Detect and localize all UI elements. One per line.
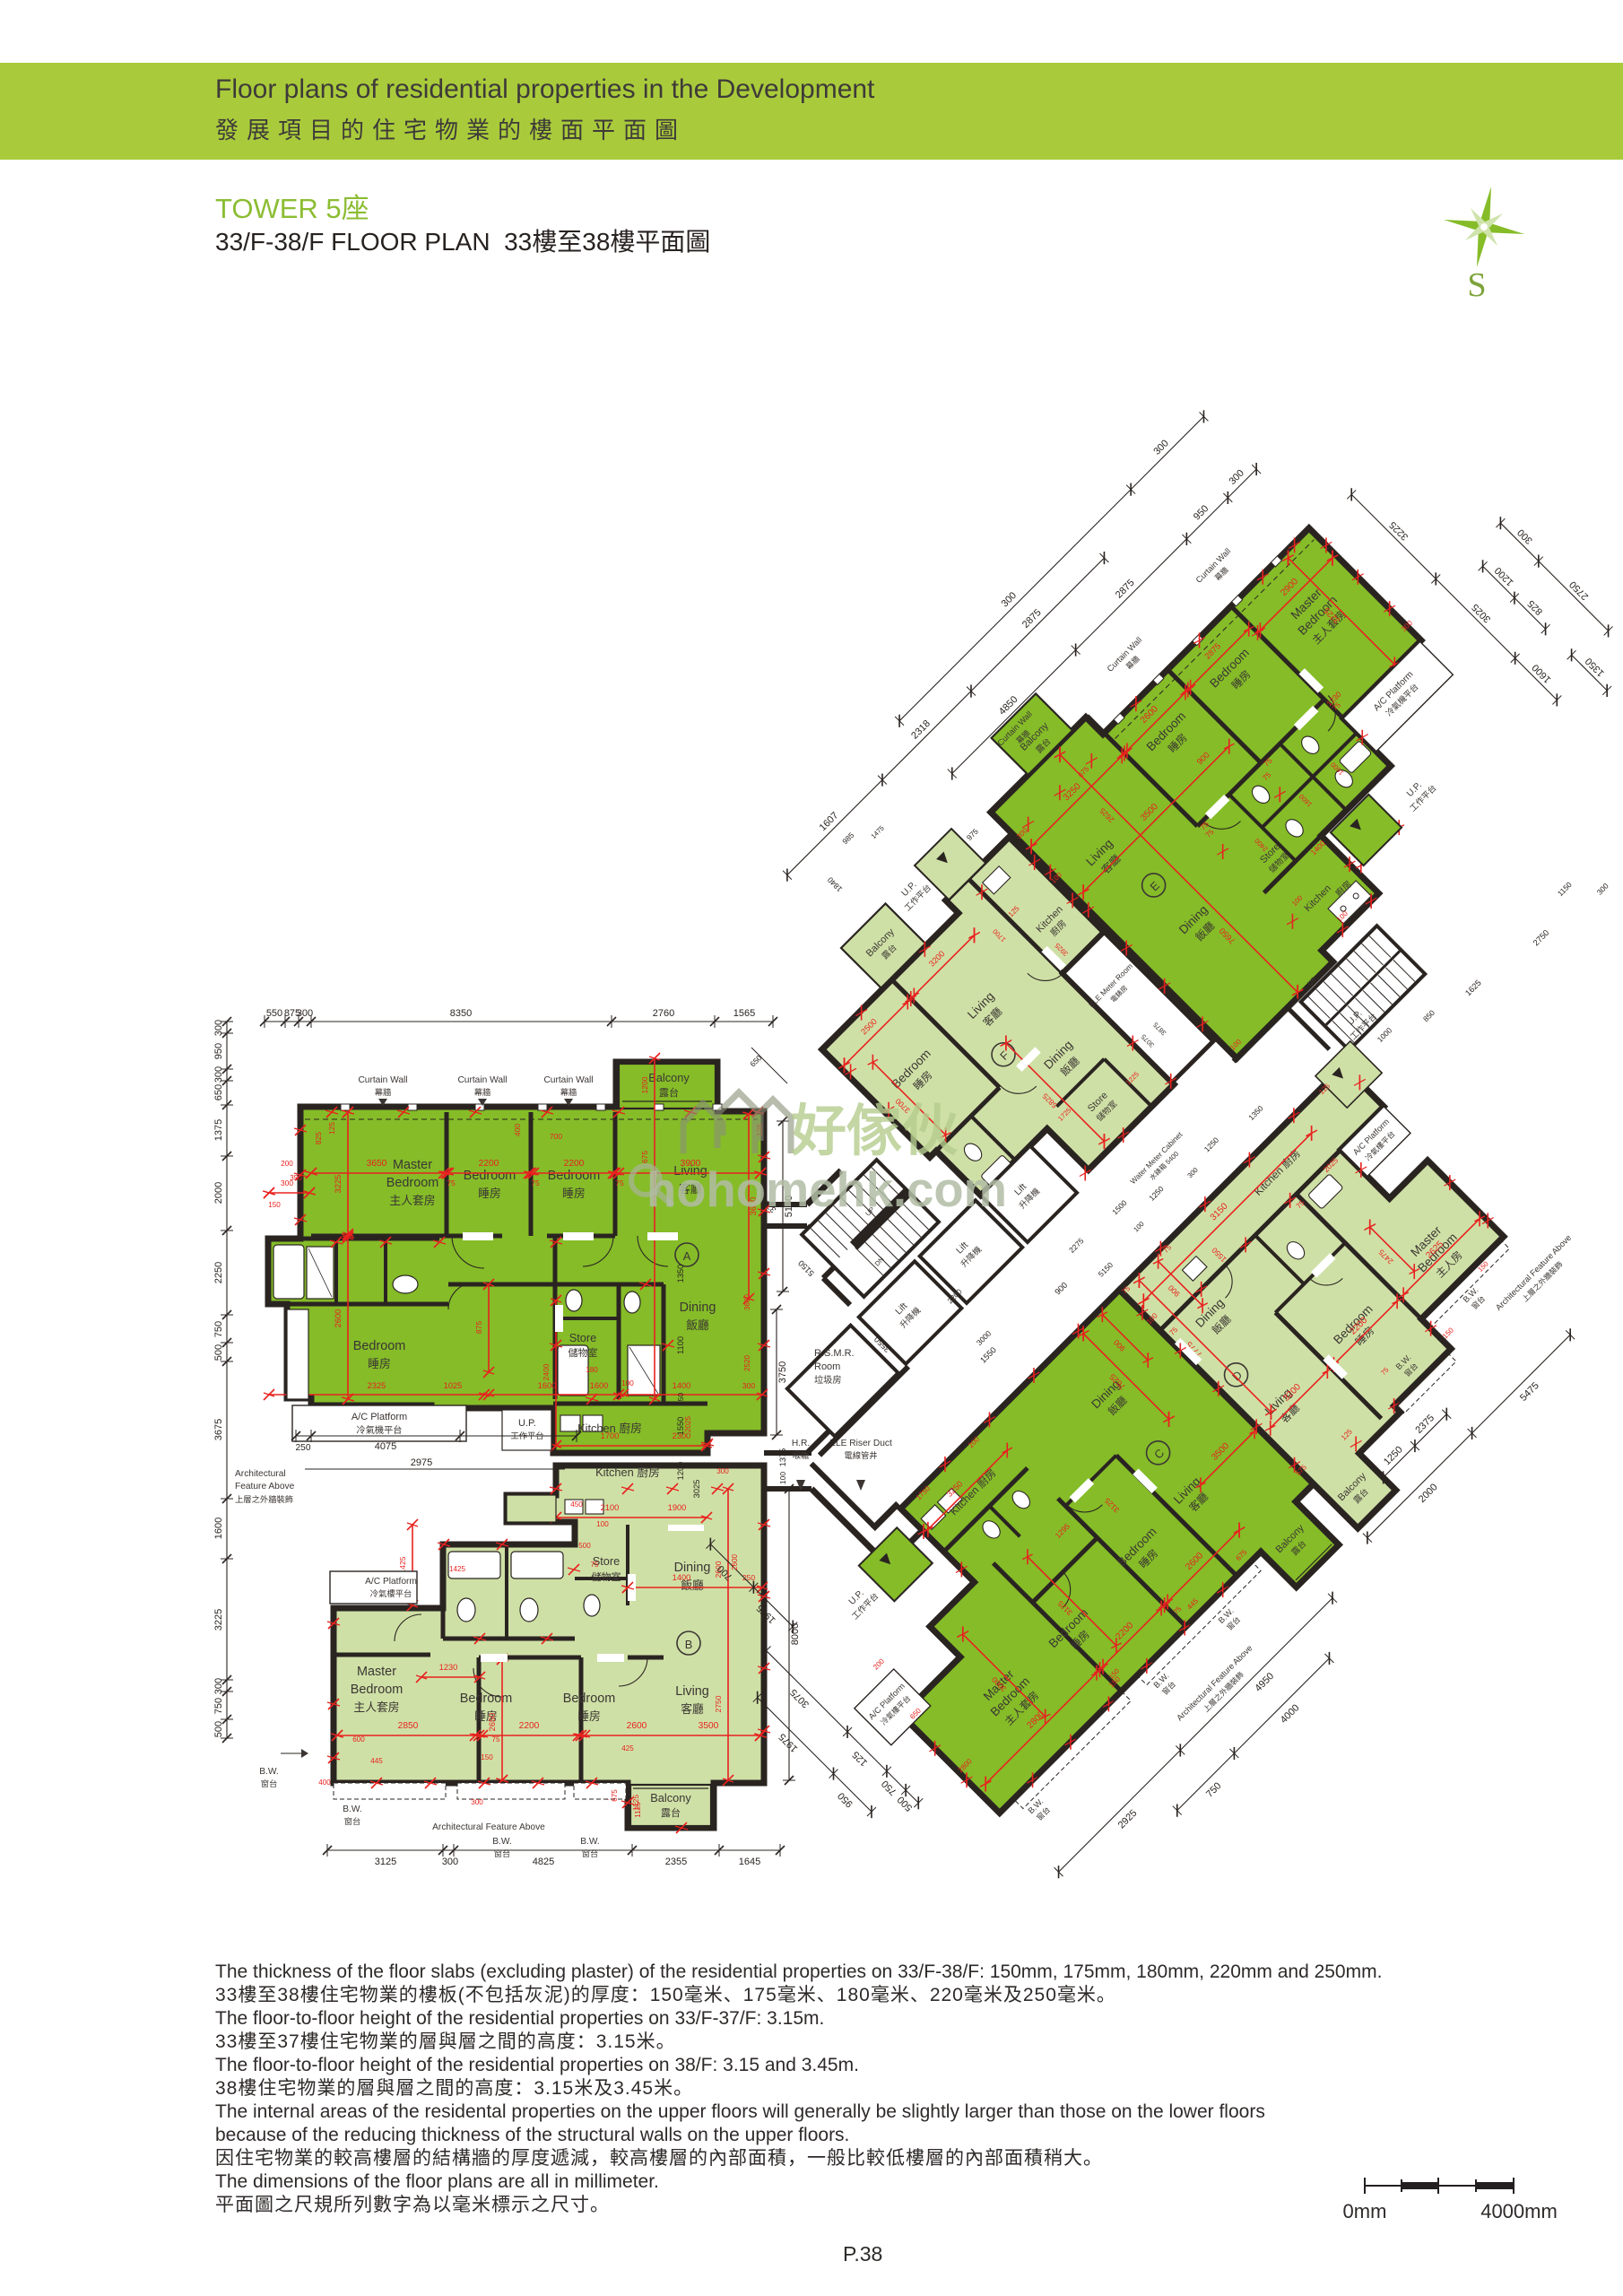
svg-text:75: 75 [531,1178,540,1187]
svg-text:3125: 3125 [375,1857,396,1867]
svg-text:1200: 1200 [676,1462,685,1481]
svg-text:100: 100 [621,1379,634,1387]
svg-text:8350: 8350 [450,1008,472,1019]
svg-text:1150: 1150 [1556,880,1574,898]
svg-text:主人套房: 主人套房 [353,1700,399,1714]
svg-text:Feature Above: Feature Above [235,1482,295,1492]
svg-text:700: 700 [550,1132,562,1141]
svg-text:Master: Master [357,1665,396,1679]
svg-text:4075: 4075 [375,1441,396,1452]
svg-text:300: 300 [1151,438,1170,457]
svg-text:400: 400 [318,1779,331,1787]
svg-text:4825: 4825 [533,1857,554,1867]
svg-text:750: 750 [213,1321,224,1337]
svg-text:125: 125 [327,1122,336,1135]
svg-text:250: 250 [296,1443,311,1453]
svg-text:950: 950 [213,1043,224,1059]
svg-text:300: 300 [442,1857,458,1867]
svg-text:1600: 1600 [213,1518,224,1539]
svg-text:300: 300 [1515,526,1534,545]
svg-text:2318: 2318 [909,718,933,742]
svg-text:300: 300 [716,1467,729,1475]
svg-text:300: 300 [1228,468,1246,487]
svg-text:冷氣機平台: 冷氣機平台 [357,1424,403,1436]
svg-text:150: 150 [268,1201,281,1209]
svg-text:2600: 2600 [731,1554,739,1571]
svg-text:U.P.: U.P. [518,1418,536,1429]
svg-text:1125: 1125 [634,1802,642,1818]
svg-text:儲物室: 儲物室 [592,1570,621,1583]
svg-text:R.S.M.R.: R.S.M.R. [814,1348,855,1359]
svg-text:Balcony: Balcony [650,1791,691,1805]
svg-text:客廳: 客廳 [681,1702,704,1716]
svg-text:2760: 2760 [653,1008,674,1019]
svg-text:3600: 3600 [743,1294,751,1311]
svg-text:2600: 2600 [627,1721,647,1731]
svg-text:窗台: 窗台 [344,1816,361,1826]
svg-text:4000mm: 4000mm [1480,2200,1558,2222]
svg-text:幕牆: 幕牆 [474,1087,491,1097]
svg-text:5150: 5150 [1097,1260,1115,1279]
svg-text:1100: 1100 [676,1336,685,1354]
svg-text:Bedroom: Bedroom [460,1692,512,1706]
svg-text:1625: 1625 [1463,978,1483,998]
svg-text:3025: 3025 [692,1480,701,1499]
svg-text:1250: 1250 [1147,1184,1166,1203]
svg-text:睡房: 睡房 [562,1187,586,1200]
svg-text:B: B [685,1638,693,1651]
svg-text:750: 750 [213,1698,224,1714]
svg-text:75: 75 [590,1561,599,1569]
svg-text:2400: 2400 [542,1363,551,1380]
svg-text:Curtain Wall: Curtain Wall [543,1075,593,1085]
svg-text:2200: 2200 [519,1721,540,1731]
svg-text:300: 300 [213,1020,224,1036]
svg-text:2275: 2275 [1067,1236,1086,1255]
svg-text:650: 650 [213,1084,224,1100]
svg-text:1000: 1000 [1376,1025,1394,1044]
svg-text:1475: 1475 [870,824,886,840]
svg-text:Store: Store [569,1331,597,1344]
svg-text:3025: 3025 [1470,602,1493,625]
svg-text:上層之外牆裝飾: 上層之外牆裝飾 [235,1494,293,1504]
svg-text:300: 300 [1595,881,1610,896]
svg-text:650: 650 [748,1053,763,1068]
svg-text:1645: 1645 [739,1857,760,1867]
svg-text:500: 500 [213,1344,224,1361]
svg-text:1200: 1200 [1493,565,1516,588]
svg-text:975: 975 [965,827,980,842]
svg-text:950: 950 [1192,503,1211,522]
svg-text:150: 150 [481,1753,493,1761]
svg-text:窗台: 窗台 [261,1779,278,1788]
svg-text:200: 200 [281,1160,293,1168]
svg-text:2375: 2375 [1413,1413,1436,1436]
svg-text:Kitchen 廚房: Kitchen 廚房 [595,1465,660,1479]
svg-text:600: 600 [352,1735,365,1744]
svg-text:3650: 3650 [367,1159,387,1169]
svg-text:1350: 1350 [1584,656,1607,679]
svg-text:75: 75 [491,1735,500,1744]
svg-text:2355: 2355 [665,1857,687,1867]
svg-text:1565: 1565 [733,1008,755,1019]
svg-text:2750: 2750 [1567,578,1591,602]
svg-text:1975: 1975 [777,1731,800,1754]
svg-text:1350: 1350 [1246,1103,1265,1122]
svg-text:1600: 1600 [538,1381,557,1390]
svg-text:Curtain Wall: Curtain Wall [1194,546,1233,585]
svg-text:hohomehk.com: hohomehk.com [647,1162,1007,1217]
svg-text:B.W.: B.W. [343,1805,362,1814]
svg-text:900: 900 [1053,1281,1069,1297]
svg-text:1375: 1375 [213,1119,224,1141]
svg-text:1550: 1550 [978,1345,998,1365]
svg-text:3075: 3075 [788,1687,811,1710]
svg-text:主人套房: 主人套房 [389,1194,435,1207]
svg-text:2200: 2200 [564,1159,585,1169]
svg-text:1425: 1425 [449,1565,466,1573]
svg-text:75: 75 [615,1178,624,1187]
svg-text:垃圾房: 垃圾房 [814,1374,842,1386]
svg-text:Curtain Wall: Curtain Wall [457,1075,507,1085]
svg-text:2025: 2025 [684,1416,692,1433]
svg-text:3225: 3225 [1387,519,1410,543]
svg-text:幕牆: 幕牆 [375,1087,392,1097]
svg-text:300: 300 [213,1066,224,1083]
svg-text:350: 350 [676,1393,685,1405]
svg-text:1250: 1250 [1382,1444,1405,1467]
svg-text:電線管井: 電線管井 [844,1450,877,1460]
svg-text:2750: 2750 [1532,928,1551,948]
svg-text:2750: 2750 [714,1695,723,1712]
svg-text:B.W.: B.W. [259,1767,279,1777]
svg-text:H.R.: H.R. [792,1439,810,1448]
svg-text:1400: 1400 [673,1573,691,1582]
svg-text:B.W.: B.W. [492,1837,512,1847]
svg-text:300: 300 [1185,1166,1199,1179]
svg-text:985: 985 [840,831,855,846]
svg-text:1500: 1500 [1110,1198,1129,1217]
svg-text:3750: 3750 [777,1361,788,1383]
svg-text:儲物室: 儲物室 [568,1346,598,1359]
svg-text:3500: 3500 [699,1721,719,1731]
svg-text:825: 825 [1526,598,1545,617]
svg-text:1200: 1200 [640,1076,649,1093]
svg-text:1230: 1230 [439,1663,458,1672]
svg-text:1350: 1350 [676,1265,685,1283]
svg-text:445: 445 [370,1757,383,1765]
svg-text:2600: 2600 [334,1309,343,1328]
svg-text:2975: 2975 [411,1457,432,1468]
svg-text:露台: 露台 [661,1806,681,1819]
svg-text:2850: 2850 [398,1721,419,1731]
svg-text:2200: 2200 [479,1159,499,1169]
svg-text:5150: 5150 [796,1258,816,1278]
svg-text:睡房: 睡房 [577,1709,601,1723]
svg-text:睡房: 睡房 [478,1187,501,1200]
svg-text:Master: Master [393,1158,432,1172]
svg-text:Bedroom: Bedroom [563,1692,615,1706]
svg-text:Architectural Feature Above: Architectural Feature Above [432,1822,545,1832]
svg-text:2000: 2000 [213,1182,224,1204]
svg-text:425: 425 [621,1744,634,1752]
svg-text:3675: 3675 [213,1419,224,1440]
svg-text:2875: 2875 [1114,578,1137,601]
svg-text:2100: 2100 [601,1503,620,1512]
svg-text:2325: 2325 [368,1381,386,1390]
svg-text:180: 180 [586,1366,598,1374]
svg-text:675: 675 [611,1789,619,1802]
svg-text:1250: 1250 [1202,1135,1221,1154]
svg-text:2875: 2875 [1020,607,1044,631]
svg-text:1607: 1607 [818,810,841,833]
svg-text:好傢伙: 好傢伙 [790,1100,958,1162]
svg-text:100: 100 [596,1520,609,1528]
svg-text:Bedroom: Bedroom [386,1176,438,1190]
svg-text:8000: 8000 [790,1623,801,1645]
svg-text:Bedroom: Bedroom [351,1683,403,1697]
svg-text:400: 400 [513,1124,522,1136]
svg-text:Architectural Feature Above: Architectural Feature Above [1175,1643,1254,1722]
svg-text:2520: 2520 [743,1355,751,1372]
svg-text:675: 675 [640,1151,649,1163]
svg-text:100: 100 [1132,1220,1145,1233]
svg-text:3225: 3225 [213,1609,224,1631]
svg-text:300: 300 [297,1008,313,1019]
svg-text:飯廳: 飯廳 [686,1318,709,1332]
svg-text:睡房: 睡房 [368,1357,391,1370]
svg-text:Bedroom: Bedroom [548,1169,600,1183]
svg-text:上層之外牆裝飾: 上層之外牆裝飾 [489,1841,490,1843]
svg-text:B.W.: B.W. [580,1837,600,1847]
svg-text:350: 350 [290,1174,302,1182]
svg-text:550: 550 [266,1008,282,1019]
svg-text:Dining: Dining [680,1300,716,1315]
svg-text:1900: 1900 [668,1503,687,1512]
svg-text:冷氣樓平台: 冷氣樓平台 [370,1588,412,1598]
svg-text:1025: 1025 [444,1381,463,1390]
svg-text:Bedroom: Bedroom [464,1169,516,1183]
svg-text:450: 450 [570,1500,583,1509]
svg-text:ELE Riser Duct: ELE Riser Duct [829,1439,892,1448]
svg-text:A: A [683,1249,691,1263]
svg-text:200: 200 [872,1657,886,1671]
svg-text:500: 500 [578,1542,591,1550]
svg-text:3000: 3000 [975,1328,994,1347]
svg-text:Curtain Wall: Curtain Wall [358,1075,407,1085]
svg-text:幕牆: 幕牆 [560,1087,577,1097]
svg-text:1400: 1400 [673,1381,691,1390]
svg-text:2250: 2250 [213,1262,224,1283]
svg-text:875: 875 [474,1321,483,1334]
svg-text:0mm: 0mm [1343,2200,1387,2222]
svg-text:2650: 2650 [488,1713,497,1732]
svg-text:Bedroom: Bedroom [353,1339,405,1353]
svg-text:A/C Platform: A/C Platform [365,1577,417,1587]
svg-text:Living: Living [675,1684,709,1699]
svg-text:露台: 露台 [659,1086,679,1099]
svg-text:300: 300 [213,1678,224,1694]
svg-text:300: 300 [1000,590,1019,609]
svg-text:750: 750 [1204,1780,1223,1799]
svg-text:100: 100 [778,1472,787,1484]
svg-text:500: 500 [213,1721,224,1737]
svg-text:Curtain Wall: Curtain Wall [1106,635,1144,674]
svg-text:1700: 1700 [601,1431,620,1440]
svg-text:3225: 3225 [334,1175,343,1194]
svg-text:850: 850 [1421,1008,1436,1023]
svg-text:Room: Room [814,1361,840,1372]
svg-text:825: 825 [314,1132,323,1144]
svg-text:300: 300 [742,1381,755,1390]
svg-text:300: 300 [471,1798,483,1806]
svg-text:1600: 1600 [1530,662,1553,685]
svg-text:A/C Platform: A/C Platform [352,1412,407,1422]
svg-text:1600: 1600 [590,1381,609,1390]
svg-text:75: 75 [447,1178,456,1187]
svg-text:Architectural: Architectural [235,1469,286,1479]
svg-text:1840: 1840 [826,875,845,894]
